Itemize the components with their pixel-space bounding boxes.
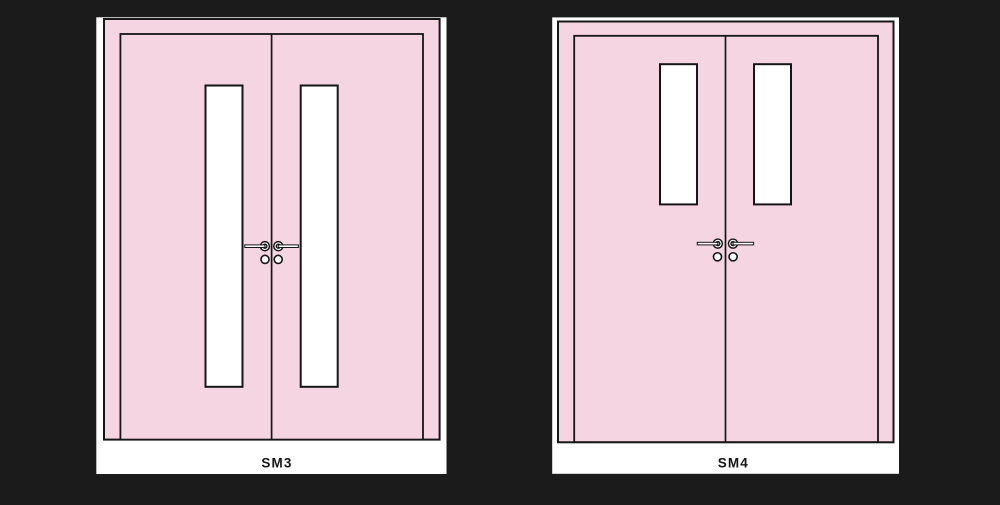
svg-text:SM4: SM4 bbox=[718, 456, 748, 471]
svg-text:SM3: SM3 bbox=[261, 456, 291, 471]
